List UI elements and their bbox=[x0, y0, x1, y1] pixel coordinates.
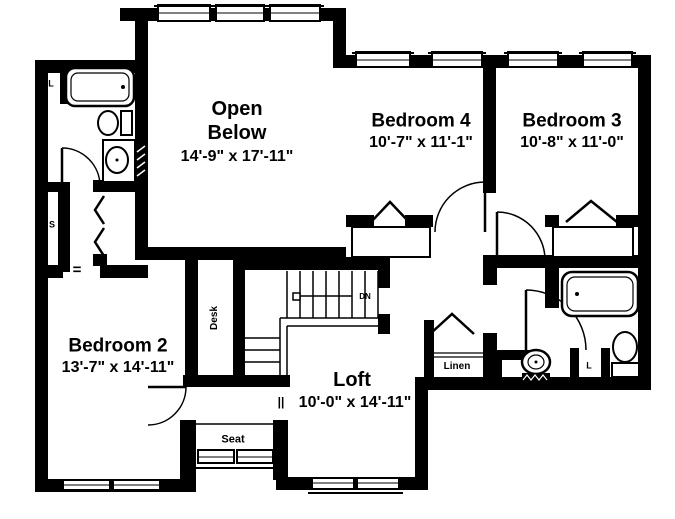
wall bbox=[616, 215, 638, 227]
window bbox=[352, 52, 414, 67]
window bbox=[212, 5, 268, 21]
desk-label: Desk bbox=[210, 306, 220, 330]
wall bbox=[638, 55, 651, 390]
wall bbox=[545, 215, 559, 227]
closet-rod-bedroom3 bbox=[553, 201, 633, 257]
wall bbox=[183, 375, 290, 387]
staircase bbox=[245, 271, 378, 375]
linen-abbr-label-1: L bbox=[48, 80, 54, 89]
bedroom2-label: Bedroom 2 bbox=[68, 337, 167, 356]
linen-abbr-label-2: L bbox=[586, 362, 592, 371]
window bbox=[308, 478, 357, 493]
wall bbox=[483, 255, 497, 285]
wall bbox=[93, 254, 107, 266]
wall bbox=[483, 333, 497, 377]
window bbox=[354, 478, 403, 493]
window bbox=[504, 52, 562, 67]
floor-plan-drawing bbox=[0, 0, 675, 519]
door-bedroom2 bbox=[148, 387, 186, 425]
window bbox=[234, 450, 276, 468]
open-below-dimensions: 14'-9" x 17'-11" bbox=[181, 149, 294, 165]
wall bbox=[273, 420, 288, 480]
bifold-doors bbox=[95, 196, 104, 256]
toilet-icon bbox=[612, 332, 639, 377]
stair-treads-lower bbox=[245, 338, 280, 362]
bedroom4-label: Bedroom 4 bbox=[371, 112, 470, 131]
wall bbox=[233, 270, 245, 377]
window bbox=[266, 5, 324, 21]
wall bbox=[570, 348, 579, 388]
floor-plan: Open Below 14'-9" x 17'-11" Bedroom 4 10… bbox=[0, 0, 675, 519]
wall bbox=[35, 60, 48, 492]
wall bbox=[58, 182, 70, 272]
wall bbox=[378, 268, 390, 288]
door-bedroom3 bbox=[497, 212, 545, 260]
wall bbox=[100, 265, 148, 278]
stairs-down-label: DN bbox=[359, 293, 371, 301]
wall bbox=[185, 260, 198, 380]
bedroom2-dimensions: 13'-7" x 14'-11" bbox=[62, 360, 175, 376]
wall bbox=[48, 265, 63, 278]
window bbox=[154, 5, 214, 21]
closet-rod-bedroom4 bbox=[352, 202, 430, 257]
linen-closet-label: Linen bbox=[444, 362, 471, 372]
window bbox=[110, 480, 163, 491]
bedroom3-label: Bedroom 3 bbox=[522, 112, 621, 131]
window bbox=[428, 52, 486, 67]
bedroom4-dimensions: 10'-7" x 11'-1" bbox=[369, 135, 473, 151]
wall bbox=[415, 377, 428, 490]
window bbox=[579, 52, 636, 67]
seat-label: Seat bbox=[221, 435, 244, 446]
open-below-label: Open bbox=[211, 99, 262, 119]
wall bbox=[233, 257, 390, 270]
window bbox=[195, 450, 237, 468]
wall bbox=[105, 182, 148, 192]
railing-symbol: || bbox=[278, 396, 285, 408]
closet-rod-hall bbox=[430, 314, 474, 334]
wall bbox=[378, 314, 390, 334]
sink-icon bbox=[522, 350, 550, 381]
wall bbox=[424, 320, 434, 377]
loft-dimensions: 10'-0" x 14'-11" bbox=[299, 395, 412, 411]
opening-symbol: = bbox=[73, 263, 82, 278]
toilet-icon bbox=[98, 111, 132, 135]
bedroom3-dimensions: 10'-8" x 11'-0" bbox=[520, 135, 624, 151]
wall bbox=[601, 348, 610, 388]
bathroom1-fixtures bbox=[66, 68, 145, 182]
bathtub-icon bbox=[562, 272, 638, 316]
wall bbox=[483, 68, 496, 193]
wall bbox=[545, 268, 559, 308]
window bbox=[60, 480, 113, 491]
door-bedroom4 bbox=[435, 182, 485, 232]
bathtub-icon bbox=[66, 68, 134, 106]
shelves-abbr-label: S bbox=[49, 221, 55, 230]
loft-label: Loft bbox=[333, 370, 371, 390]
open-below-label2: Below bbox=[208, 123, 267, 143]
stair-railing bbox=[280, 318, 378, 375]
wall bbox=[346, 215, 374, 227]
bathroom2-fixtures bbox=[522, 272, 639, 381]
down-arrow bbox=[293, 293, 352, 300]
linen-shelf-lines bbox=[434, 353, 483, 357]
wall bbox=[135, 8, 148, 260]
